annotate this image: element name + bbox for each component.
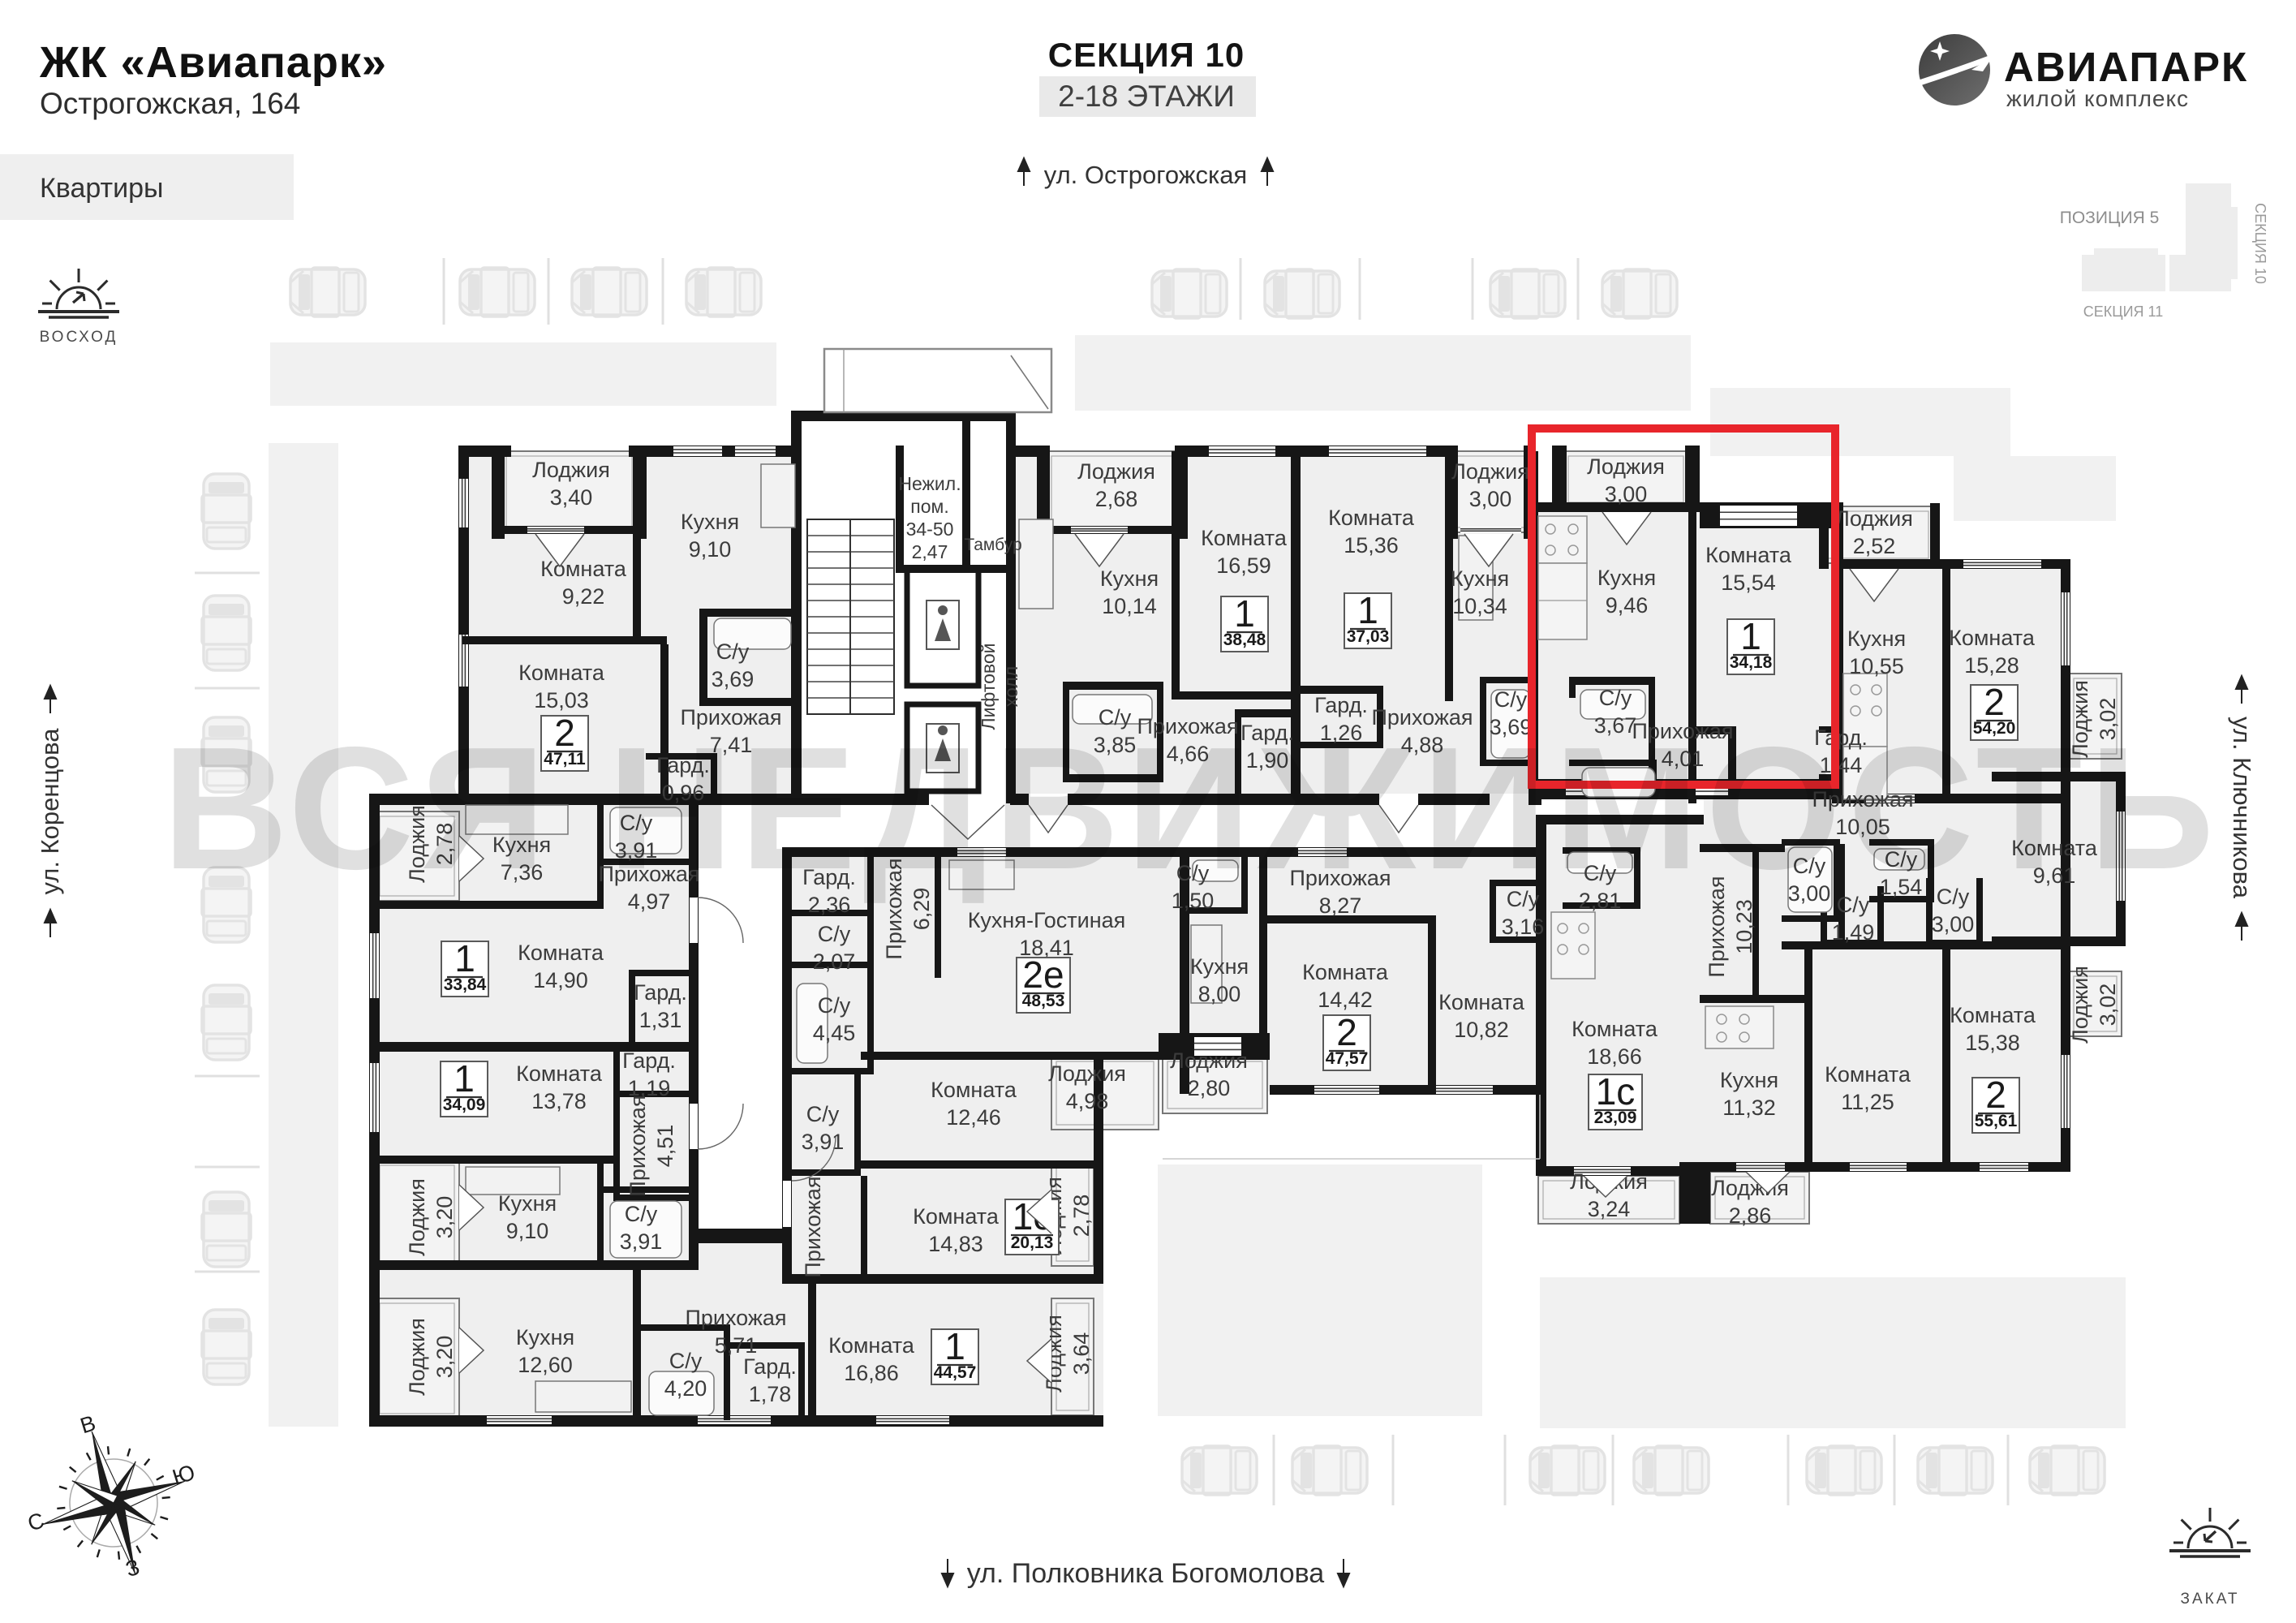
svg-text:1: 1	[454, 937, 475, 979]
svg-text:2,07: 2,07	[813, 949, 856, 974]
svg-text:Лоджия: Лоджия	[1451, 459, 1529, 484]
svg-text:С/у: С/у	[806, 1102, 840, 1126]
svg-text:Кухня: Кухня	[1720, 1068, 1778, 1092]
svg-text:ул. Коренцова: ул. Коренцова	[36, 728, 64, 895]
svg-text:2,52: 2,52	[1853, 534, 1896, 558]
svg-text:Лоджия: Лоджия	[1048, 1061, 1126, 1086]
svg-text:Острогожская, 164: Острогожская, 164	[40, 87, 300, 120]
svg-text:4,45: 4,45	[813, 1021, 856, 1045]
svg-text:4,51: 4,51	[653, 1125, 677, 1168]
svg-text:20,13: 20,13	[1011, 1233, 1054, 1252]
svg-text:Комната: Комната	[518, 941, 604, 965]
svg-text:Кухня: Кухня	[1597, 566, 1656, 590]
svg-text:1: 1	[944, 1325, 965, 1367]
svg-text:С/у: С/у	[818, 993, 851, 1018]
svg-text:10,55: 10,55	[1849, 654, 1904, 678]
svg-text:9,10: 9,10	[506, 1219, 549, 1243]
svg-text:15,38: 15,38	[1965, 1031, 2020, 1055]
svg-text:Кухня: Кухня	[681, 510, 739, 534]
svg-text:1,78: 1,78	[749, 1382, 792, 1406]
svg-text:14,90: 14,90	[533, 968, 588, 992]
svg-text:С/у: С/у	[669, 1349, 703, 1373]
svg-text:Комната: Комната	[1950, 1003, 2036, 1027]
svg-text:34,09: 34,09	[443, 1096, 486, 1114]
svg-text:2: 2	[1336, 1011, 1357, 1053]
svg-text:Гард.: Гард.	[622, 1048, 676, 1073]
svg-text:2,47: 2,47	[912, 541, 948, 562]
svg-text:15,28: 15,28	[1964, 653, 2019, 678]
svg-text:10,34: 10,34	[1452, 594, 1507, 618]
svg-text:4,98: 4,98	[1066, 1089, 1109, 1113]
svg-text:12,46: 12,46	[946, 1105, 1001, 1130]
svg-text:3,40: 3,40	[550, 485, 593, 510]
svg-text:АВИАПАРК: АВИАПАРК	[2004, 44, 2248, 90]
svg-text:Комната: Комната	[516, 1061, 603, 1086]
svg-text:Комната: Комната	[1825, 1062, 1911, 1087]
svg-text:Комната: Комната	[1705, 543, 1792, 567]
svg-text:3,00: 3,00	[1932, 912, 1975, 936]
svg-text:Лоджия: Лоджия	[2068, 966, 2092, 1044]
svg-text:1,49: 1,49	[1832, 920, 1875, 945]
svg-text:Кухня: Кухня	[1100, 566, 1159, 591]
svg-text:Комната: Комната	[1201, 526, 1288, 550]
svg-text:Лоджия: Лоджия	[1170, 1048, 1248, 1073]
svg-text:Комната: Комната	[1438, 990, 1525, 1014]
svg-text:жилой комплекс: жилой комплекс	[2006, 86, 2189, 111]
svg-text:холл: холл	[1000, 666, 1021, 707]
svg-text:15,03: 15,03	[534, 688, 589, 712]
svg-text:Лоджия: Лоджия	[405, 1318, 429, 1396]
svg-text:3,00: 3,00	[1469, 487, 1512, 511]
svg-text:4,20: 4,20	[664, 1376, 707, 1401]
svg-text:ЗАКАТ: ЗАКАТ	[2180, 1591, 2239, 1608]
svg-text:Лоджия: Лоджия	[1077, 459, 1155, 484]
svg-text:10,23: 10,23	[1732, 899, 1756, 954]
svg-text:16,86: 16,86	[844, 1361, 899, 1385]
svg-text:СЕКЦИЯ 10: СЕКЦИЯ 10	[2252, 203, 2268, 284]
svg-text:12,60: 12,60	[518, 1353, 573, 1377]
svg-text:1,31: 1,31	[639, 1008, 682, 1032]
svg-text:Лоджия: Лоджия	[405, 1178, 429, 1256]
svg-text:34-50: 34-50	[906, 519, 954, 540]
svg-text:18,66: 18,66	[1587, 1044, 1642, 1069]
svg-text:2,68: 2,68	[1095, 487, 1138, 511]
svg-text:44,57: 44,57	[934, 1363, 977, 1382]
svg-text:Тамбур: Тамбур	[964, 536, 1021, 554]
svg-text:С/у: С/у	[1599, 686, 1632, 710]
svg-text:9,10: 9,10	[689, 537, 732, 562]
svg-text:ул. Ключникова: ул. Ключникова	[2228, 717, 2256, 899]
svg-text:16,59: 16,59	[1216, 553, 1271, 578]
svg-text:3,91: 3,91	[802, 1130, 845, 1154]
svg-text:Лоджия: Лоджия	[532, 458, 610, 482]
svg-text:Комната: Комната	[1572, 1017, 1658, 1041]
svg-text:2,86: 2,86	[1729, 1203, 1772, 1228]
svg-text:3,20: 3,20	[432, 1336, 457, 1379]
svg-text:С/у: С/у	[1494, 687, 1528, 712]
svg-text:Комната: Комната	[913, 1204, 1000, 1229]
svg-text:С/у: С/у	[818, 922, 851, 946]
svg-text:Кухня: Кухня	[498, 1191, 557, 1216]
svg-text:48,53: 48,53	[1022, 992, 1065, 1010]
svg-text:1с: 1с	[1596, 1070, 1636, 1113]
svg-text:Квартиры: Квартиры	[40, 173, 163, 204]
svg-text:ВОСХОД: ВОСХОД	[40, 329, 118, 346]
svg-text:15,36: 15,36	[1344, 533, 1399, 558]
svg-text:11,32: 11,32	[1722, 1096, 1776, 1120]
svg-text:1: 1	[1740, 615, 1761, 657]
svg-text:15,54: 15,54	[1721, 570, 1776, 595]
svg-text:Комната: Комната	[540, 557, 627, 581]
svg-text:9,46: 9,46	[1606, 593, 1649, 618]
svg-text:55,61: 55,61	[1975, 1112, 2018, 1130]
svg-text:14,83: 14,83	[928, 1232, 983, 1256]
svg-text:Комната: Комната	[828, 1333, 915, 1358]
svg-text:Комната: Комната	[1328, 506, 1415, 530]
svg-text:С/у: С/у	[625, 1202, 658, 1226]
svg-text:Кухня: Кухня	[1451, 566, 1509, 591]
svg-text:Кухня: Кухня	[1190, 954, 1249, 979]
svg-text:3,00: 3,00	[1605, 482, 1648, 506]
svg-text:2,78: 2,78	[1069, 1195, 1094, 1238]
svg-text:ул. Острогожская: ул. Острогожская	[1044, 161, 1247, 189]
svg-text:Нежил.: Нежил.	[898, 473, 961, 494]
svg-text:1: 1	[1234, 592, 1255, 635]
svg-text:14,42: 14,42	[1318, 988, 1373, 1012]
svg-text:3,91: 3,91	[620, 1229, 663, 1254]
svg-text:10,14: 10,14	[1102, 594, 1157, 618]
svg-text:2,80: 2,80	[1188, 1076, 1231, 1100]
svg-text:11,25: 11,25	[1841, 1090, 1894, 1114]
svg-text:8,00: 8,00	[1198, 982, 1241, 1006]
svg-text:Гард.: Гард.	[634, 980, 687, 1005]
svg-text:С/у: С/у	[716, 639, 750, 664]
svg-text:Кухня: Кухня	[1847, 626, 1906, 651]
svg-text:Кухня: Кухня	[516, 1325, 574, 1350]
svg-text:ПОЗИЦИЯ 5: ПОЗИЦИЯ 5	[2060, 209, 2160, 227]
svg-text:Комната: Комната	[518, 661, 605, 685]
svg-text:Прихожая: Прихожая	[626, 1095, 650, 1196]
svg-text:23,09: 23,09	[1594, 1109, 1637, 1127]
svg-text:3,20: 3,20	[432, 1196, 457, 1239]
svg-text:Комната: Комната	[1949, 626, 2036, 650]
svg-text:Комната: Комната	[931, 1078, 1017, 1102]
svg-text:1: 1	[454, 1057, 475, 1100]
svg-text:2: 2	[1985, 1074, 2006, 1116]
svg-text:3,24: 3,24	[1588, 1197, 1631, 1221]
svg-text:37,03: 37,03	[1347, 627, 1390, 646]
svg-text:2-18 ЭТАЖИ: 2-18 ЭТАЖИ	[1058, 80, 1235, 113]
svg-text:13,78: 13,78	[531, 1089, 587, 1113]
svg-text:34,18: 34,18	[1730, 653, 1773, 672]
svg-text:9,22: 9,22	[562, 584, 605, 609]
svg-text:Гард.: Гард.	[743, 1354, 797, 1379]
svg-text:2е: 2е	[1022, 954, 1064, 996]
svg-text:33,84: 33,84	[444, 975, 487, 994]
svg-text:1: 1	[1357, 589, 1378, 631]
svg-text:Комната: Комната	[1302, 960, 1389, 984]
svg-text:3,64: 3,64	[1069, 1332, 1094, 1375]
svg-text:Прихожая: Прихожая	[801, 1176, 825, 1277]
svg-text:Лоджия: Лоджия	[1587, 454, 1665, 479]
svg-text:3,16: 3,16	[1502, 915, 1545, 939]
svg-text:3,69: 3,69	[712, 667, 755, 691]
svg-text:ЖК «Авиапарк»: ЖК «Авиапарк»	[39, 38, 387, 87]
svg-text:47,57: 47,57	[1326, 1049, 1369, 1068]
svg-text:Лоджия: Лоджия	[1835, 506, 1913, 531]
svg-text:ВСЯ НЕДВИЖИМОСТЬ: ВСЯ НЕДВИЖИМОСТЬ	[162, 710, 2221, 906]
svg-text:10,82: 10,82	[1454, 1018, 1509, 1042]
svg-text:ул. Полковника Богомолова: ул. Полковника Богомолова	[967, 1558, 1325, 1589]
svg-text:Кухня-Гостиная: Кухня-Гостиная	[968, 908, 1126, 932]
svg-text:Прихожая: Прихожая	[685, 1306, 786, 1330]
svg-text:пом.: пом.	[910, 496, 948, 517]
svg-text:СЕКЦИЯ 11: СЕКЦИЯ 11	[2083, 304, 2163, 320]
svg-text:38,48: 38,48	[1223, 631, 1266, 649]
svg-text:СЕКЦИЯ 10: СЕКЦИЯ 10	[1048, 36, 1245, 74]
svg-text:3,02: 3,02	[2096, 984, 2120, 1027]
